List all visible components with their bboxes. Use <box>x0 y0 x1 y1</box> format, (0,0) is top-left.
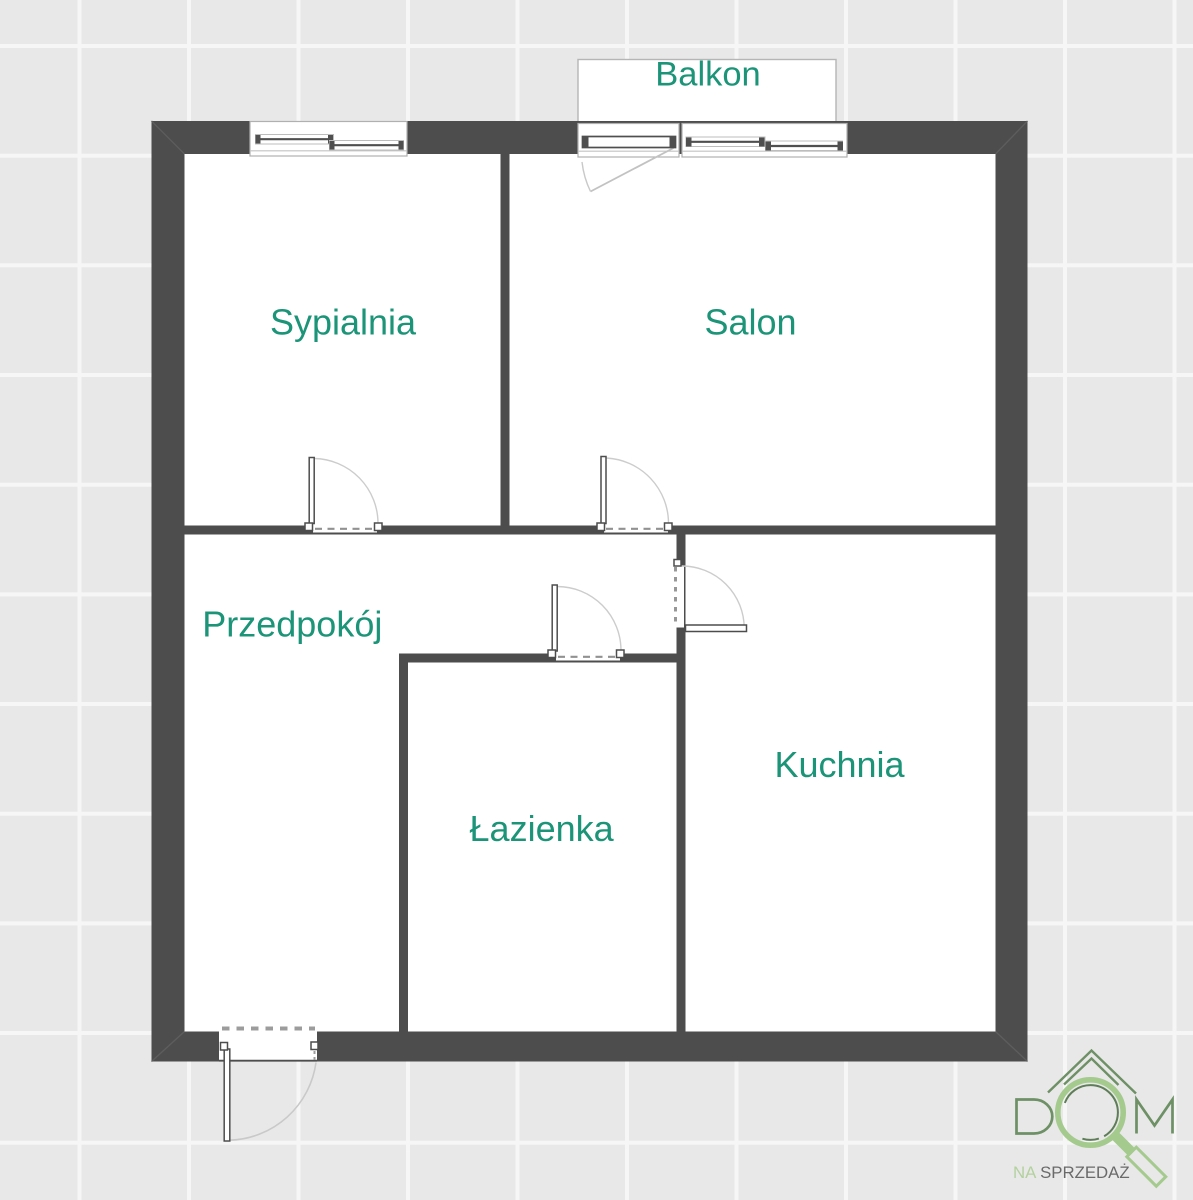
svg-text:NA SPRZEDAŻ: NA SPRZEDAŻ <box>1013 1163 1130 1182</box>
svg-text:Łazienka: Łazienka <box>470 808 615 849</box>
svg-text:Balkon: Balkon <box>655 56 761 94</box>
svg-text:Przedpokój: Przedpokój <box>202 604 382 645</box>
svg-text:Kuchnia: Kuchnia <box>774 744 905 785</box>
svg-text:Salon: Salon <box>704 302 796 343</box>
svg-text:Sypialnia: Sypialnia <box>270 302 417 343</box>
